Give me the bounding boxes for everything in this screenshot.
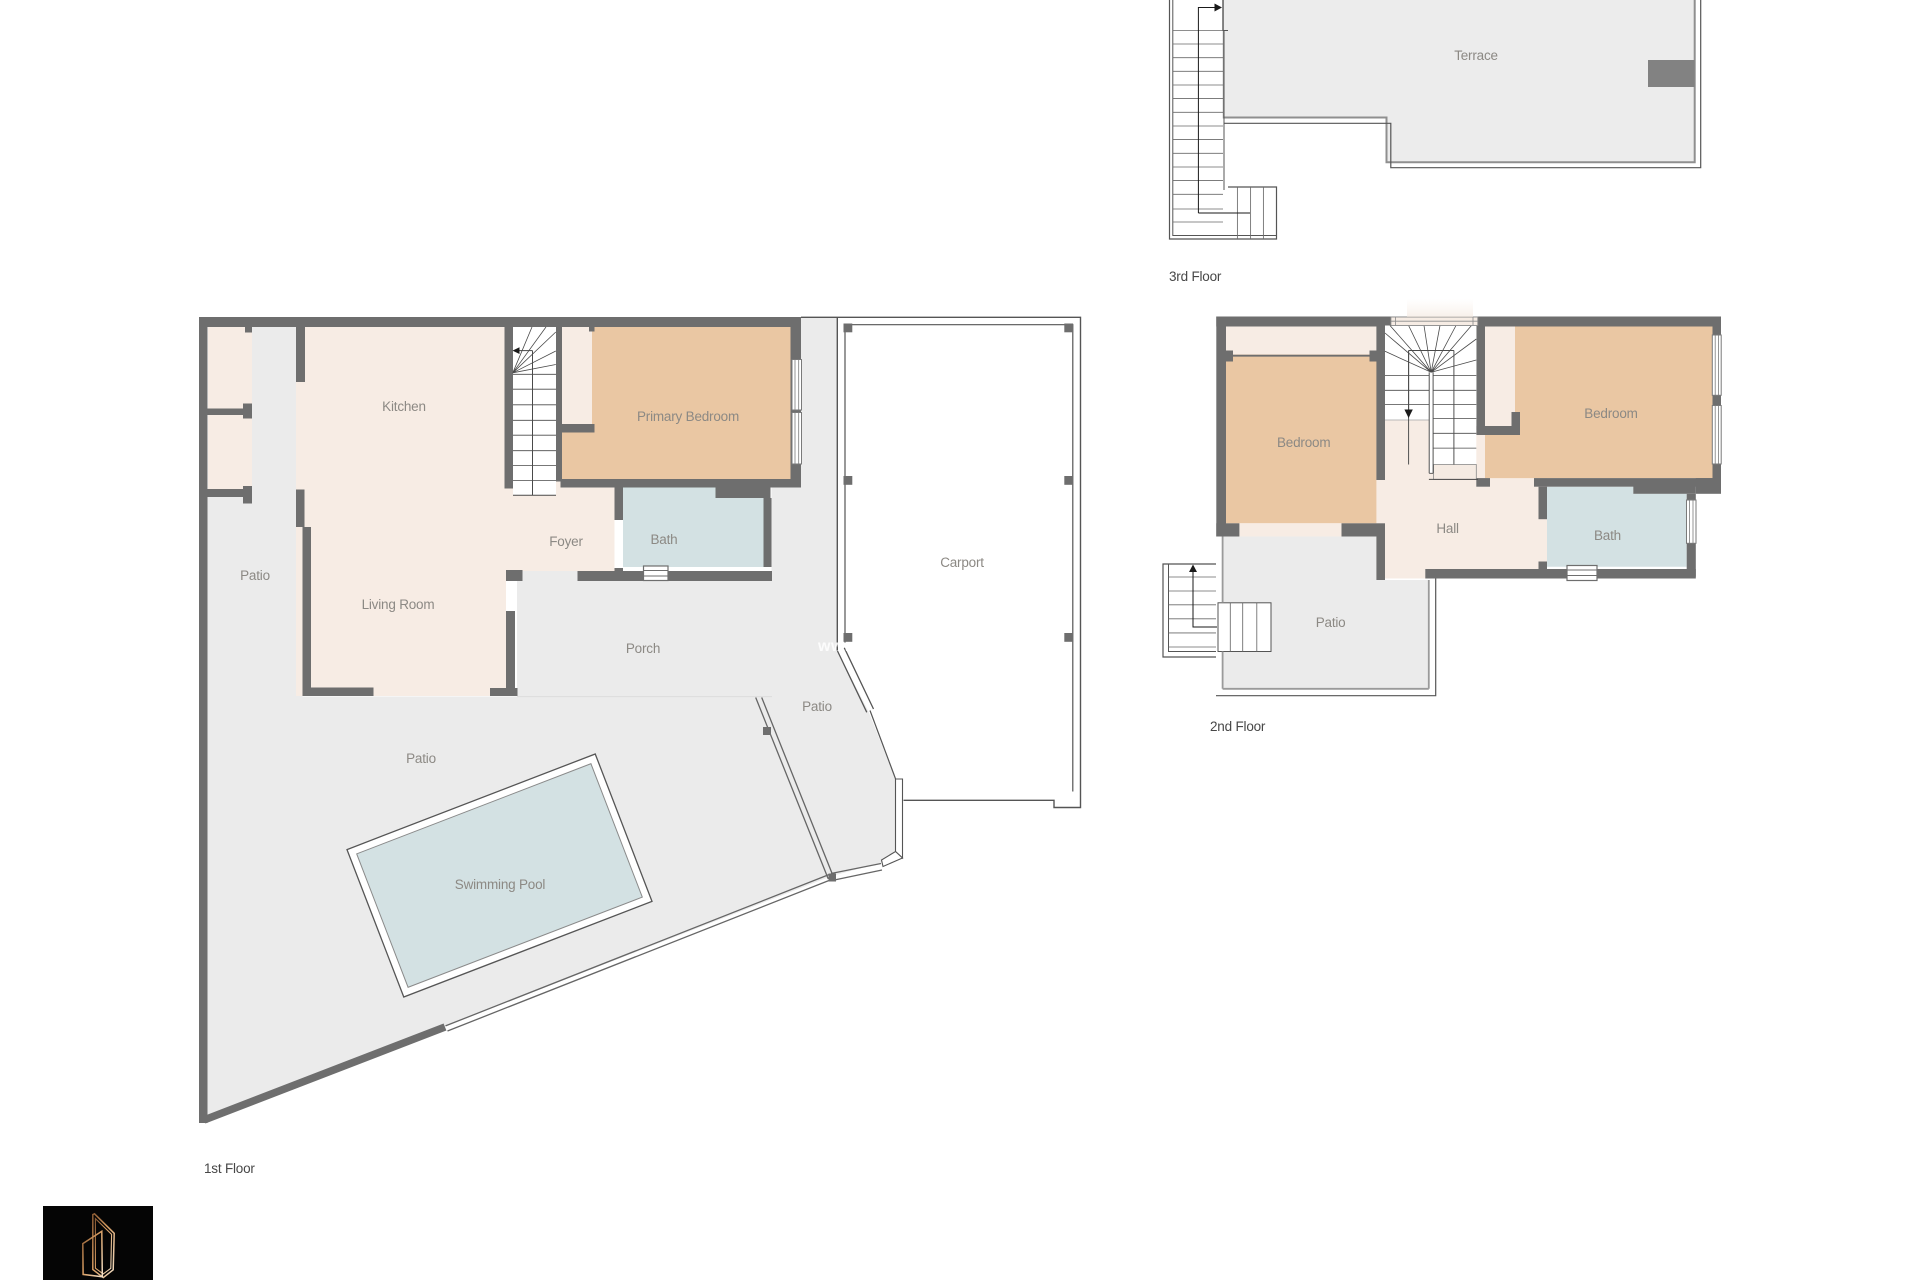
svg-text:Bath: Bath (651, 532, 678, 547)
svg-text:Bedroom: Bedroom (1584, 406, 1637, 421)
svg-text:3rd Floor: 3rd Floor (1169, 269, 1222, 284)
svg-text:www.dreamhomeplans.com: www.dreamhomeplans.com (817, 638, 1040, 655)
svg-text:Patio: Patio (802, 699, 832, 714)
svg-text:Kitchen: Kitchen (382, 399, 426, 414)
svg-text:Bedroom: Bedroom (1277, 435, 1330, 450)
svg-text:Hall: Hall (1436, 521, 1459, 536)
svg-text:Patio: Patio (1316, 615, 1346, 630)
svg-text:Patio: Patio (406, 751, 436, 766)
svg-text:Carport: Carport (940, 555, 984, 570)
svg-text:Terrace: Terrace (1454, 48, 1498, 63)
svg-text:Porch: Porch (626, 641, 660, 656)
svg-text:Living Room: Living Room (362, 597, 435, 612)
svg-text:Swimming Pool: Swimming Pool (455, 877, 546, 892)
svg-text:2nd Floor: 2nd Floor (1210, 719, 1266, 734)
svg-text:Primary Bedroom: Primary Bedroom (637, 409, 739, 424)
svg-text:Foyer: Foyer (549, 534, 583, 549)
svg-text:Patio: Patio (240, 568, 270, 583)
svg-text:1st Floor: 1st Floor (204, 1161, 255, 1176)
svg-text:Bath: Bath (1594, 528, 1621, 543)
